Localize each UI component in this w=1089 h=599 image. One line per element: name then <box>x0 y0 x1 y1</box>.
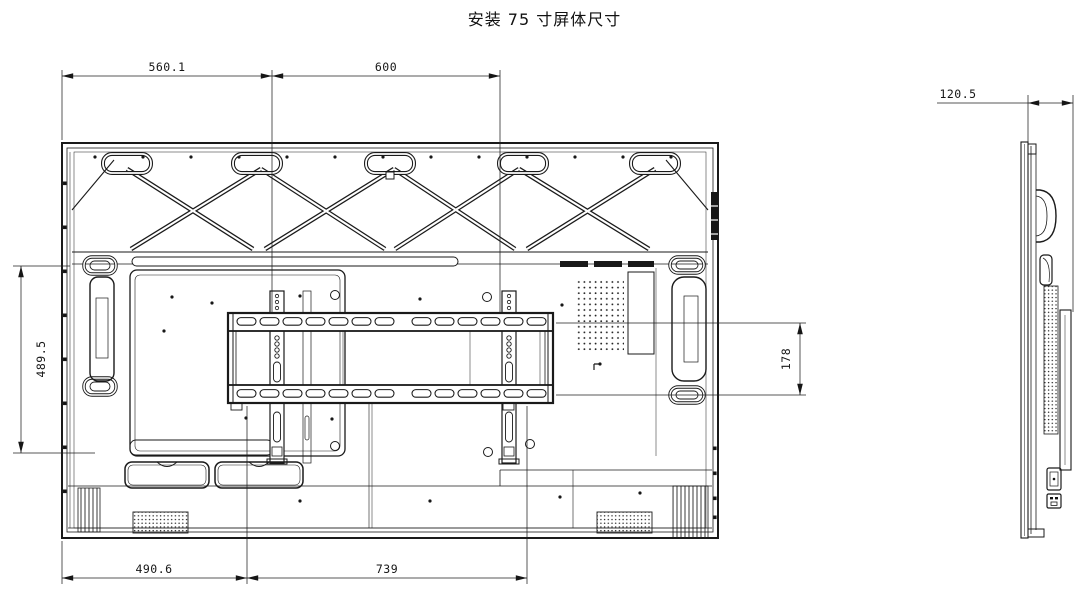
central-back-panel <box>130 270 345 456</box>
speaker-grille-right <box>597 512 652 533</box>
truss-braces <box>103 154 679 249</box>
bracket-right-vertical <box>672 277 706 381</box>
side-glass-panel <box>1021 142 1028 538</box>
side-handle <box>1036 190 1056 242</box>
dim-bracket-height-label: 178 <box>779 348 793 370</box>
dim-top-left-label: 560.1 <box>148 60 185 74</box>
side-power-inlet <box>1047 468 1061 490</box>
bracket-left-vertical <box>90 277 114 381</box>
side-view-drawing <box>1021 142 1071 538</box>
rear-view-drawing <box>62 143 718 538</box>
vent-hatch-left <box>78 488 100 532</box>
dim-top-right-label: 600 <box>375 60 397 74</box>
side-body <box>1028 144 1044 537</box>
vent-perforation <box>576 272 654 370</box>
dim-bottom-right-label: 739 <box>376 562 398 576</box>
side-power-switch <box>1047 494 1061 508</box>
technical-drawing-page: 安装 75 寸屏体尺寸 <box>0 0 1089 599</box>
drawing-canvas: 560.1 600 490.6 739 489.5 <box>0 0 1089 599</box>
dim-bottom: 490.6 739 <box>62 406 527 584</box>
side-vent-strip <box>1044 286 1058 434</box>
handle-right-top <box>670 257 704 273</box>
dim-bottom-left-label: 490.6 <box>135 562 172 576</box>
side-port-strip <box>711 192 718 240</box>
side-wall-plate <box>1060 310 1071 470</box>
side-hook-bracket <box>1040 255 1052 285</box>
bottom-box-right <box>215 462 303 488</box>
bottom-box-left <box>125 462 209 488</box>
handle-left-top <box>84 257 116 274</box>
vent-hatch-right <box>673 486 708 538</box>
dim-left-height-label: 489.5 <box>34 340 48 377</box>
dim-side-depth-label: 120.5 <box>939 87 976 101</box>
speaker-grille-left <box>133 512 188 533</box>
dim-left-height: 489.5 <box>13 266 95 453</box>
